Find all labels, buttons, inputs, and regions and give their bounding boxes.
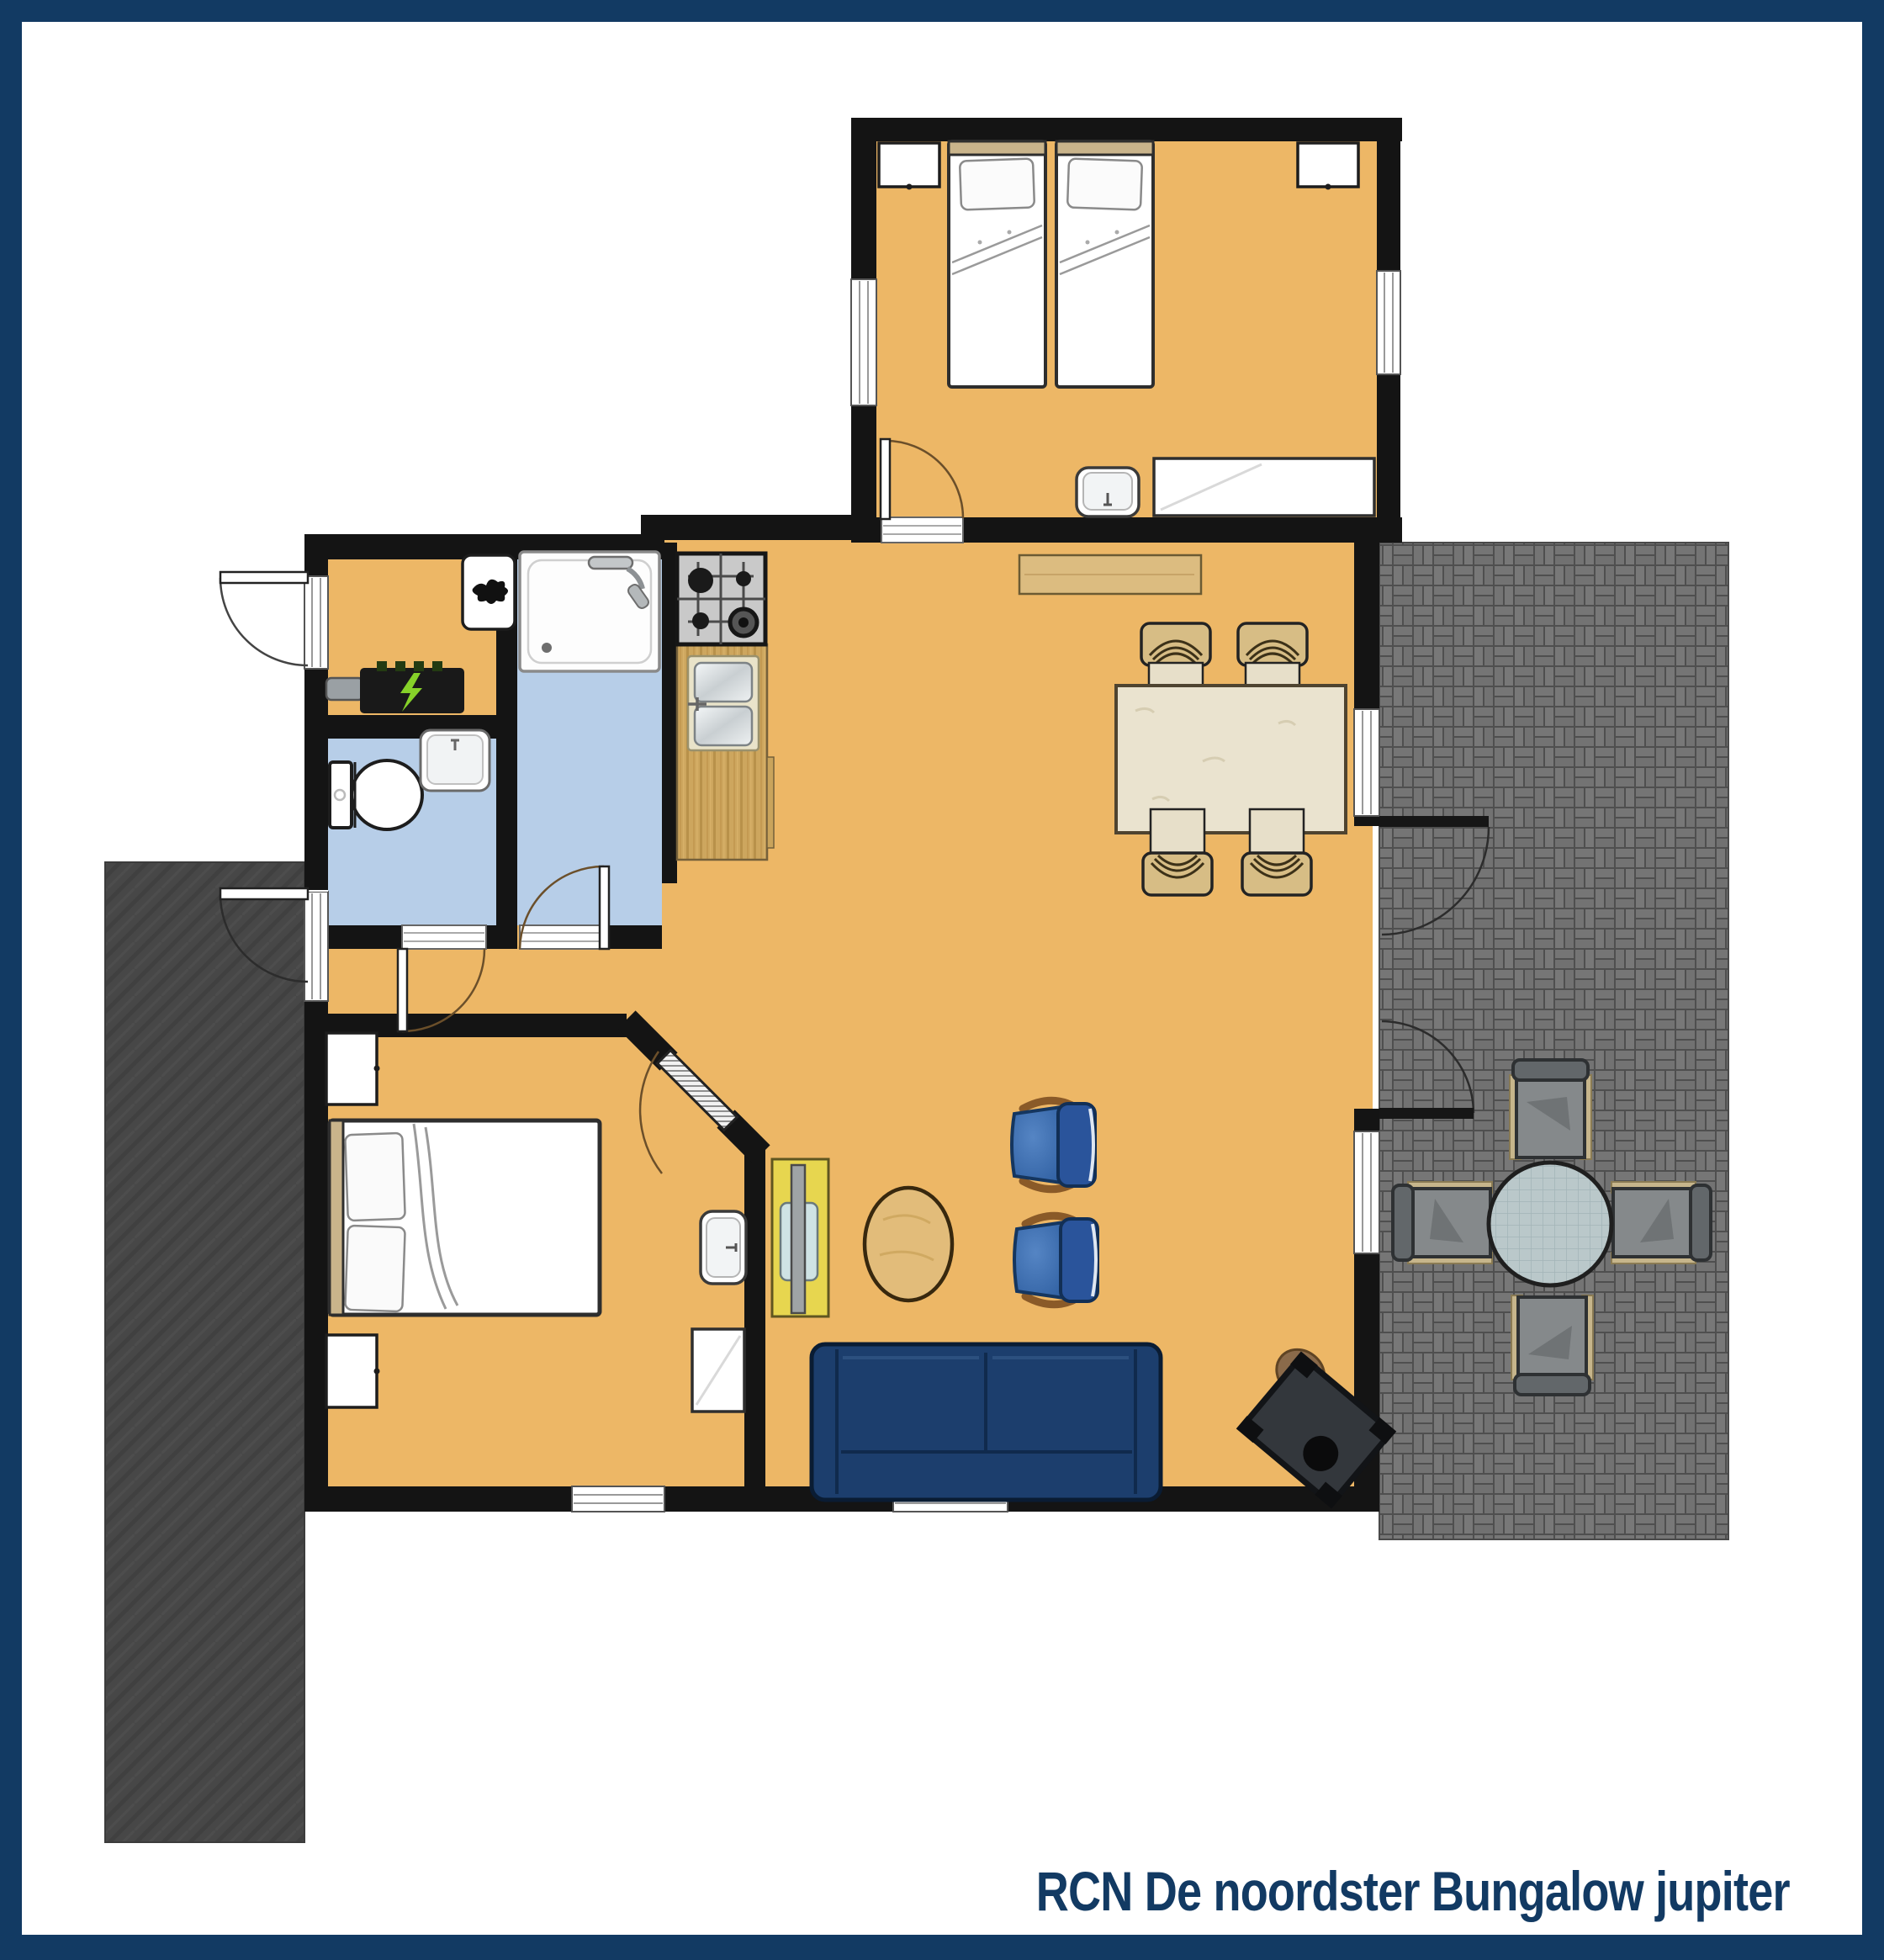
toilet — [330, 760, 422, 829]
nightstand — [326, 1033, 380, 1104]
shower-tray — [520, 552, 659, 671]
tv — [791, 1165, 805, 1313]
window-dining-right — [1354, 709, 1379, 816]
tv-cabinet — [772, 1159, 828, 1316]
dining-chair — [1242, 809, 1311, 895]
nightstand — [879, 143, 939, 190]
window-bedroom-right — [1377, 271, 1400, 374]
border-left — [0, 0, 22, 1960]
patio-chair — [1393, 1182, 1492, 1263]
threshold-bedroom1-door — [881, 517, 963, 543]
cabinet — [692, 1329, 744, 1412]
cabinet — [1154, 458, 1374, 516]
terrace-left — [105, 862, 304, 1842]
plan-title: RCN De noordster Bungalow jupiter — [1036, 1859, 1790, 1923]
single-bed — [1056, 141, 1153, 387]
armchair — [1012, 1100, 1095, 1189]
gas-hob — [677, 554, 765, 644]
window-corridor-left — [304, 892, 328, 1001]
double-bed — [330, 1120, 600, 1315]
sofa — [812, 1344, 1161, 1500]
window-bedroom2-bottom — [572, 1486, 664, 1512]
nightstand — [1298, 143, 1358, 190]
wash-basin — [701, 1211, 746, 1284]
border-bottom — [0, 1935, 1884, 1960]
floorplan-canvas: RCN De noordster Bungalow jupiter — [0, 0, 1884, 1960]
armchair — [1014, 1216, 1098, 1304]
window-living-right — [1354, 1131, 1379, 1253]
counter-handle — [767, 757, 774, 848]
border-top — [0, 0, 1884, 22]
border-right — [1862, 0, 1884, 1960]
nightstand — [326, 1335, 380, 1407]
patio-chair — [1510, 1060, 1591, 1159]
dining-chair — [1143, 809, 1212, 895]
sideboard — [1019, 555, 1201, 594]
patio-chair — [1611, 1182, 1711, 1263]
threshold-shower-door — [520, 925, 604, 949]
patio-chair — [1511, 1295, 1593, 1395]
single-bed — [949, 141, 1045, 387]
corner-basin — [421, 730, 490, 791]
boiler — [463, 555, 515, 629]
shower-room — [520, 552, 659, 671]
jamb-front-door — [304, 576, 328, 669]
round-glass-table — [1489, 1163, 1611, 1285]
floorplan-drawing — [0, 0, 1884, 1960]
window-bedroom-left — [851, 279, 876, 405]
kitchen-sink — [688, 656, 759, 750]
kitchen — [677, 554, 774, 860]
front-door — [220, 572, 308, 665]
threshold-toilet-door — [402, 925, 486, 949]
wash-basin — [1077, 468, 1139, 516]
coffee-table — [865, 1188, 952, 1300]
